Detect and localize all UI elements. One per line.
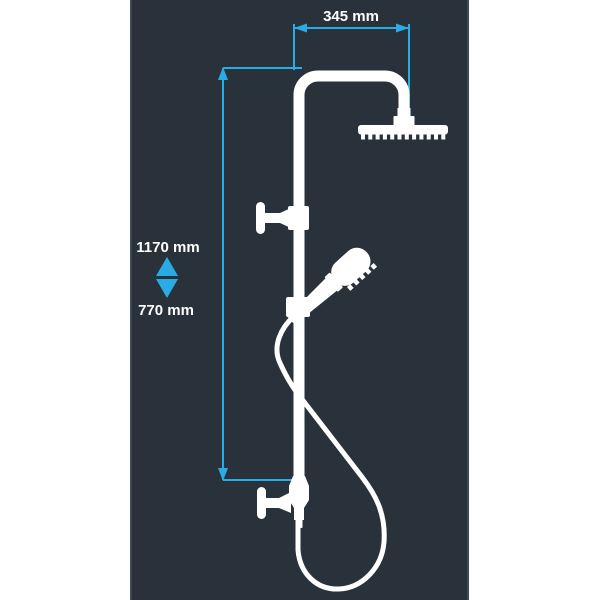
height-max-label: 1170 mm — [136, 239, 199, 256]
arrow-left-icon — [294, 24, 307, 33]
head-plate — [358, 125, 448, 135]
shower-hose — [277, 316, 384, 589]
down-triangle-icon — [156, 279, 178, 298]
height-min-label: 770 mm — [138, 302, 194, 319]
shower-column-drawing — [256, 76, 448, 589]
diagram-image: 345 mm 1170 mm 770 mm — [0, 0, 600, 600]
arrow-right-icon — [396, 24, 409, 33]
shower-diagram-svg: 345 mm 1170 mm 770 mm — [0, 0, 600, 600]
outlet-nipple — [296, 519, 303, 528]
lower-wall-bracket — [257, 476, 309, 528]
upper-wall-bracket — [256, 202, 309, 234]
bracket-sleeve — [288, 206, 309, 230]
head-collar — [394, 116, 415, 126]
head-nozzles — [361, 134, 445, 140]
width-dimension-label: 345 mm — [323, 8, 379, 25]
up-triangle-icon — [156, 257, 178, 276]
outlet-body — [289, 476, 309, 508]
rain-shower-head — [358, 108, 448, 140]
outlet-cylinder — [294, 507, 304, 520]
